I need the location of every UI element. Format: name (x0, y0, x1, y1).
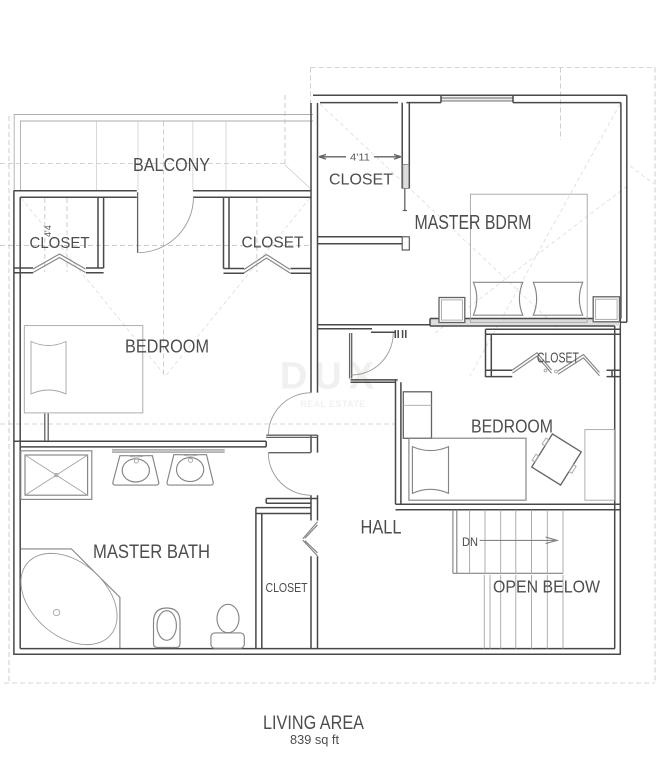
svg-text:CLOSET: CLOSET (242, 235, 304, 252)
svg-text:BEDROOM: BEDROOM (125, 336, 209, 357)
svg-text:CLOSET: CLOSET (537, 350, 579, 367)
svg-text:LIVING AREA: LIVING AREA (263, 713, 364, 734)
svg-text:CLOSET: CLOSET (329, 172, 394, 189)
svg-text:839 sq ft: 839 sq ft (290, 732, 339, 747)
svg-text:BALCONY: BALCONY (133, 155, 210, 175)
svg-text:OPEN BELOW: OPEN BELOW (493, 577, 600, 597)
svg-text:REAL ESTATE: REAL ESTATE (300, 399, 365, 409)
svg-text:BEDROOM: BEDROOM (471, 416, 553, 437)
svg-text:MASTER BATH: MASTER BATH (93, 541, 210, 563)
svg-text:DN: DN (462, 535, 478, 549)
svg-text:CLOSET: CLOSET (30, 235, 90, 252)
svg-text:4'4: 4'4 (43, 225, 53, 237)
svg-text:MASTER BDRM: MASTER BDRM (415, 212, 532, 234)
svg-text:DUX: DUX (280, 356, 381, 398)
svg-text:CLOSET: CLOSET (266, 580, 308, 595)
svg-text:HALL: HALL (361, 518, 402, 539)
svg-text:4'11: 4'11 (350, 153, 370, 164)
